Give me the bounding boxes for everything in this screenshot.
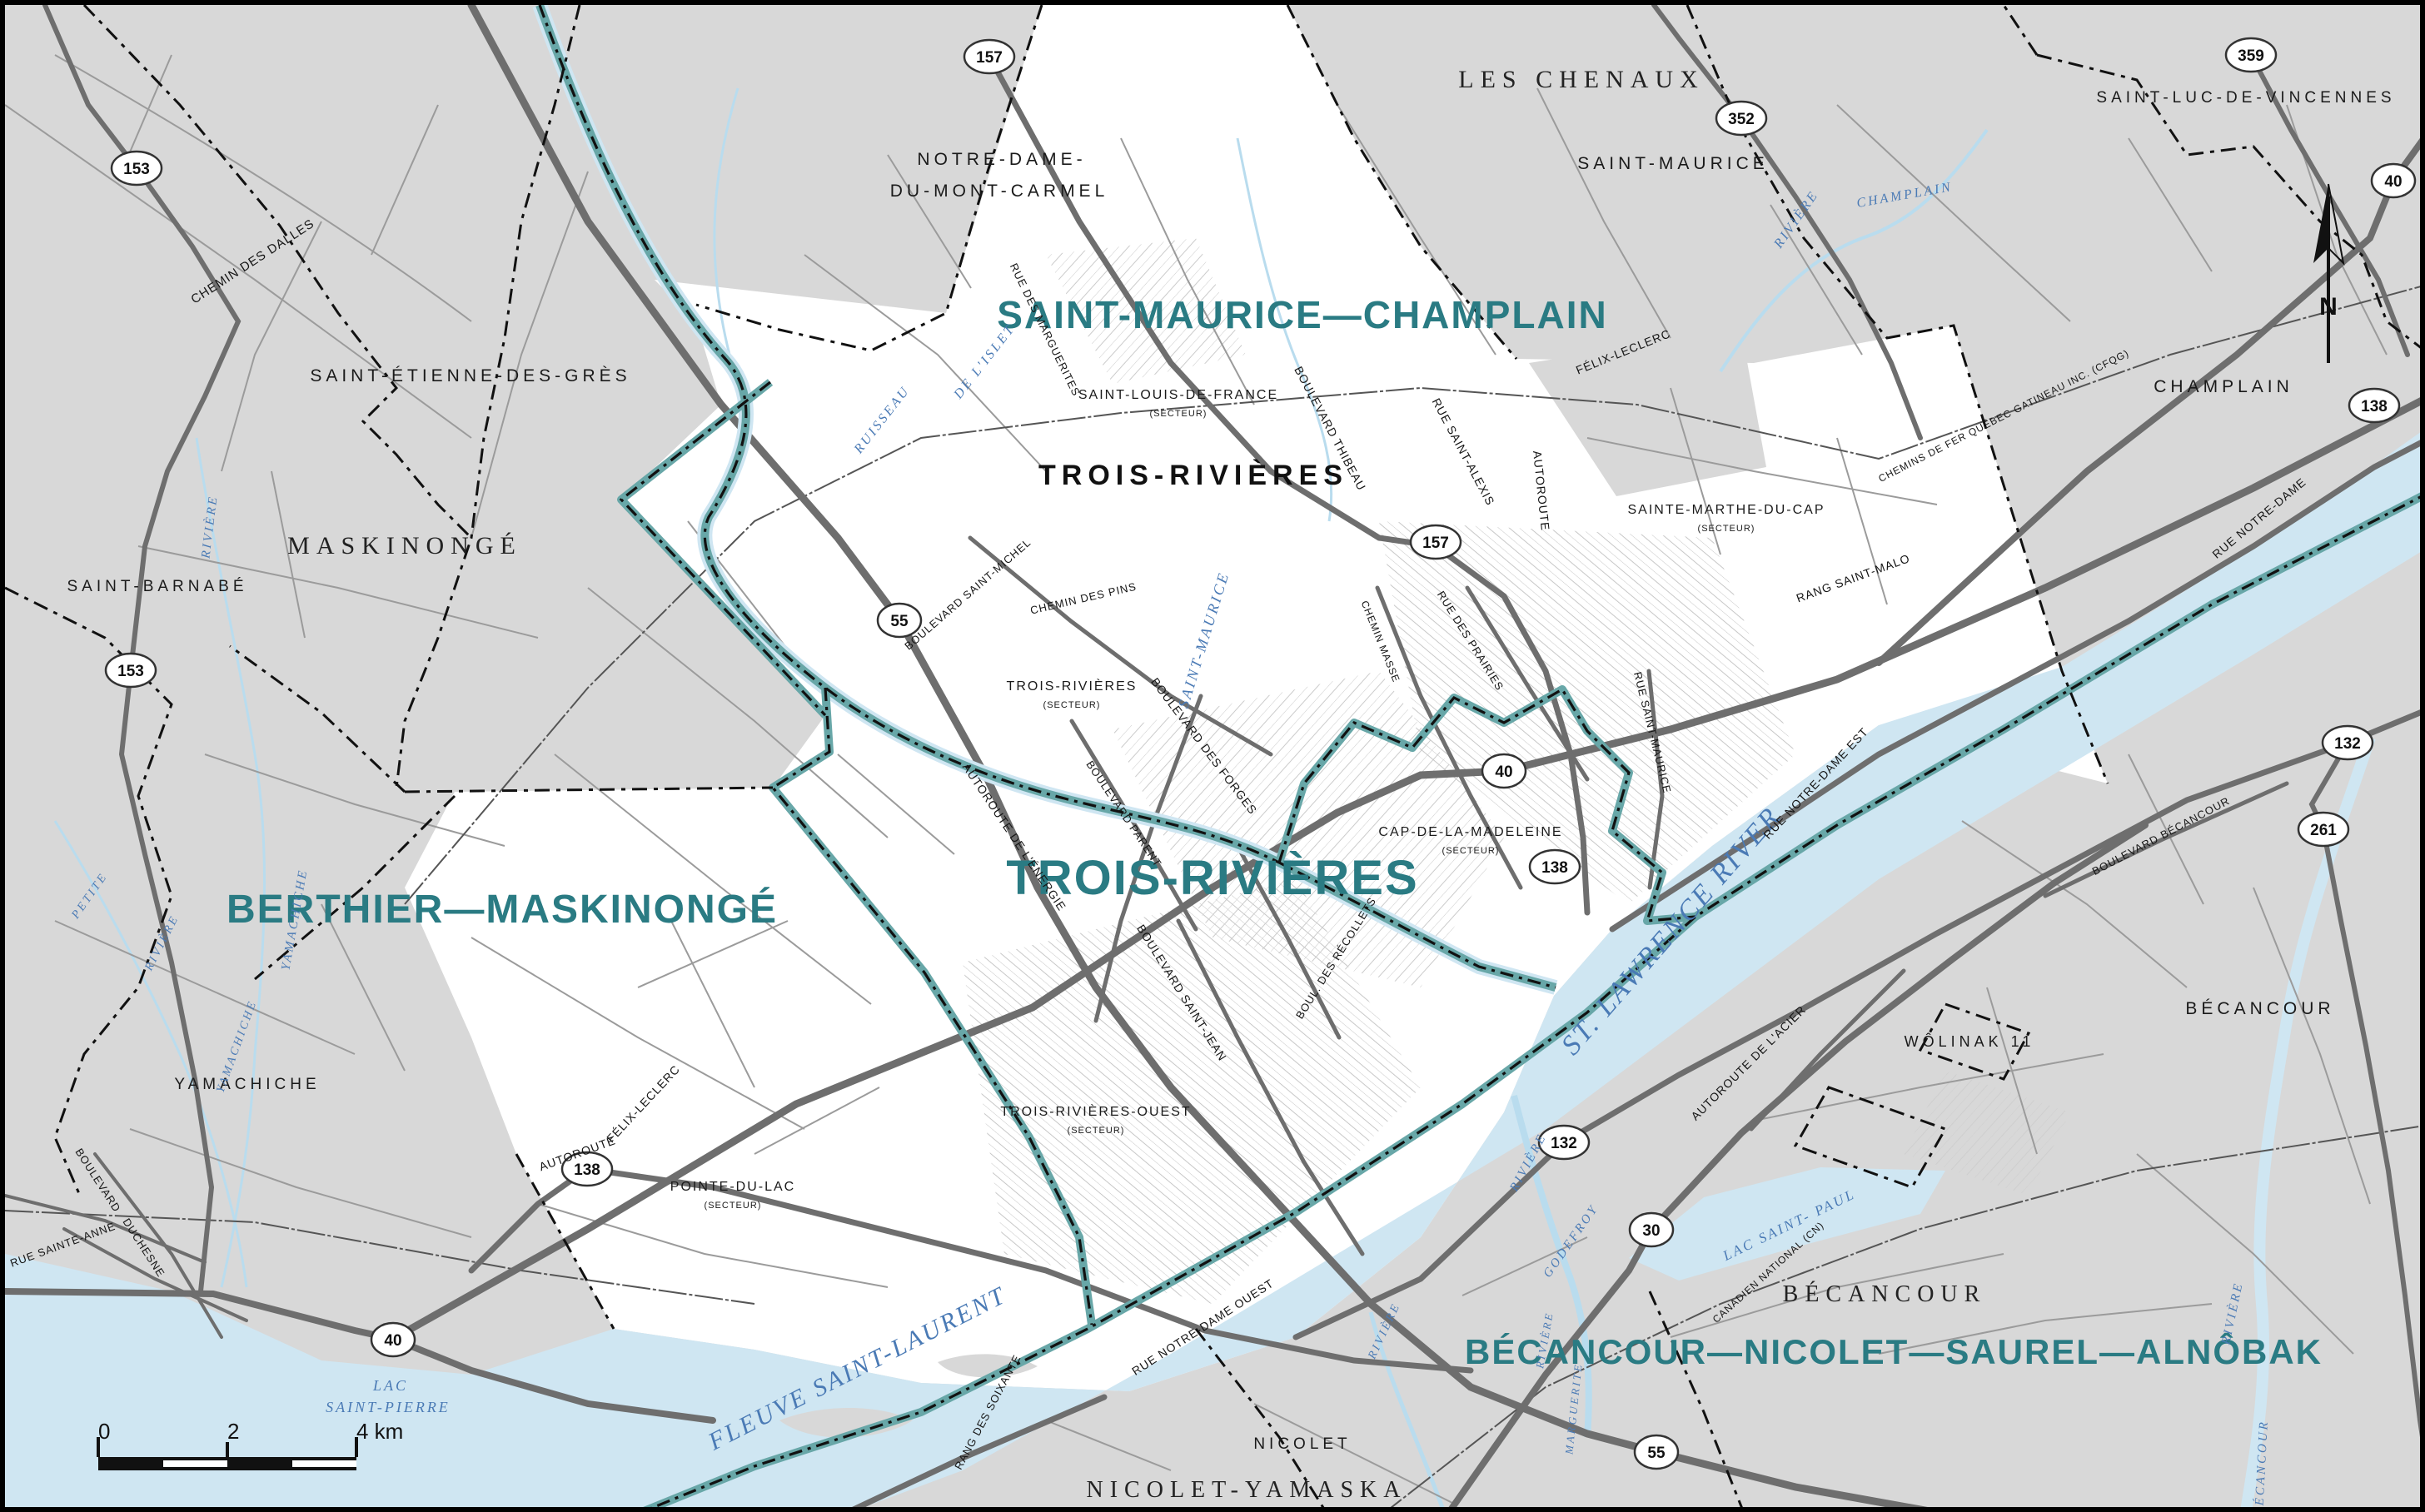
- sector-label: SAINT-LOUIS-DE-FRANCE: [1078, 388, 1278, 402]
- route-shield-157: 157: [1411, 525, 1461, 559]
- route-shield-359: 359: [2226, 38, 2276, 72]
- route-shield-number: 55: [1647, 1445, 1666, 1462]
- place-label: SAINT-MAURICE: [1577, 154, 1769, 173]
- sector-sublabel: (SECTEUR): [705, 1201, 762, 1211]
- water-label: SAINT-PIERRE: [326, 1399, 451, 1415]
- route-shield-40: 40: [2372, 164, 2415, 197]
- mrc-label: NICOLET-YAMASKA: [1087, 1477, 1407, 1503]
- route-shield-40: 40: [371, 1323, 415, 1356]
- route-shield-138: 138: [2349, 389, 2399, 422]
- sector-label: CAP-DE-LA-MADELEINE: [1378, 825, 1562, 839]
- scale-label-4km: 4 km: [356, 1419, 403, 1444]
- route-shield-number: 132: [1551, 1135, 1577, 1152]
- mrc-label: LES CHENAUX: [1458, 66, 1705, 93]
- place-label: SAINT-LUC-DE-VINCENNES: [2096, 89, 2395, 107]
- place-label: DU-MONT-CARMEL: [890, 182, 1109, 201]
- route-shield-132: 132: [2323, 726, 2373, 759]
- place-label: WÔLINAK 11: [1905, 1032, 2035, 1050]
- sector-sublabel: (SECTEUR): [1068, 1126, 1125, 1136]
- route-shield-number: 157: [976, 49, 1003, 67]
- route-shield-157: 157: [964, 40, 1014, 73]
- route-shield-number: 138: [574, 1161, 600, 1179]
- route-shield-number: 157: [1422, 535, 1449, 552]
- place-label: BÉCANCOUR: [2185, 999, 2334, 1018]
- water-label: LAC: [372, 1377, 408, 1394]
- place-label: SAINT-BARNABÉ: [67, 578, 247, 595]
- sector-sublabel: (SECTEUR): [1150, 409, 1208, 419]
- sector-sublabel: (SECTEUR): [1043, 700, 1101, 710]
- route-shield-number: 352: [1728, 111, 1755, 128]
- route-shield-number: 132: [2334, 735, 2361, 753]
- route-shield-number: 138: [2361, 398, 2388, 415]
- district-label: TROIS-RIVIÈRES: [1006, 851, 1418, 905]
- place-label: NICOLET: [1253, 1435, 1351, 1453]
- place-label: SAINT-ÉTIENNE-DES-GRÈS: [310, 366, 630, 385]
- district-label: BÉCANCOUR—NICOLET—SAUREL—ALNÔBAK: [1465, 1331, 2323, 1371]
- route-shield-number: 40: [2384, 173, 2402, 191]
- route-shield-40: 40: [1482, 754, 1526, 788]
- route-shield-number: 55: [890, 613, 909, 630]
- route-shield-number: 138: [1541, 859, 1568, 877]
- route-shield-number: 359: [2238, 47, 2264, 65]
- route-shield-55: 55: [1635, 1435, 1678, 1469]
- map-canvas: 1531573523594013815355157401381322611384…: [5, 5, 2425, 1512]
- mrc-label: MASKINONGÉ: [287, 532, 522, 560]
- route-shield-261: 261: [2298, 813, 2348, 846]
- city-label-trois-rivieres: TROIS-RIVIÈRES: [1038, 460, 1348, 491]
- route-shield-number: 261: [2310, 822, 2337, 839]
- place-label: NOTRE-DAME-: [917, 150, 1086, 169]
- route-shield-number: 40: [1495, 763, 1512, 781]
- sector-label: SAINTE-MARTHE-DU-CAP: [1627, 503, 1825, 517]
- place-label: CHAMPLAIN: [2154, 377, 2293, 396]
- sector-label: TROIS-RIVIÈRES: [1007, 678, 1138, 694]
- sector-label: TROIS-RIVIÈRES-OUEST: [1000, 1103, 1191, 1119]
- route-shield-number: 153: [117, 663, 144, 680]
- sector-sublabel: (SECTEUR): [1698, 524, 1755, 534]
- district-label: SAINT-MAURICE—CHAMPLAIN: [997, 293, 1607, 336]
- sector-label: POINTE-DU-LAC: [670, 1180, 795, 1194]
- route-shield-number: 30: [1642, 1222, 1660, 1240]
- scale-label-0: 0: [98, 1419, 110, 1444]
- route-shield-352: 352: [1716, 102, 1766, 135]
- route-shield-138: 138: [1530, 850, 1580, 883]
- route-shield-number: 40: [384, 1332, 401, 1350]
- route-shield-number: 153: [123, 161, 150, 178]
- route-shield-153: 153: [106, 654, 156, 687]
- place-label: YAMACHICHE: [174, 1076, 320, 1093]
- route-shield-153: 153: [112, 152, 162, 185]
- electoral-district-map: 1531573523594013815355157401381322611384…: [0, 0, 2425, 1512]
- mrc-label: BÉCANCOUR: [1783, 1281, 1987, 1307]
- scale-label-2: 2: [227, 1419, 239, 1444]
- sector-sublabel: (SECTEUR): [1442, 846, 1500, 856]
- district-label: BERTHIER—MASKINONGÉ: [227, 887, 778, 932]
- route-shield-30: 30: [1630, 1213, 1673, 1246]
